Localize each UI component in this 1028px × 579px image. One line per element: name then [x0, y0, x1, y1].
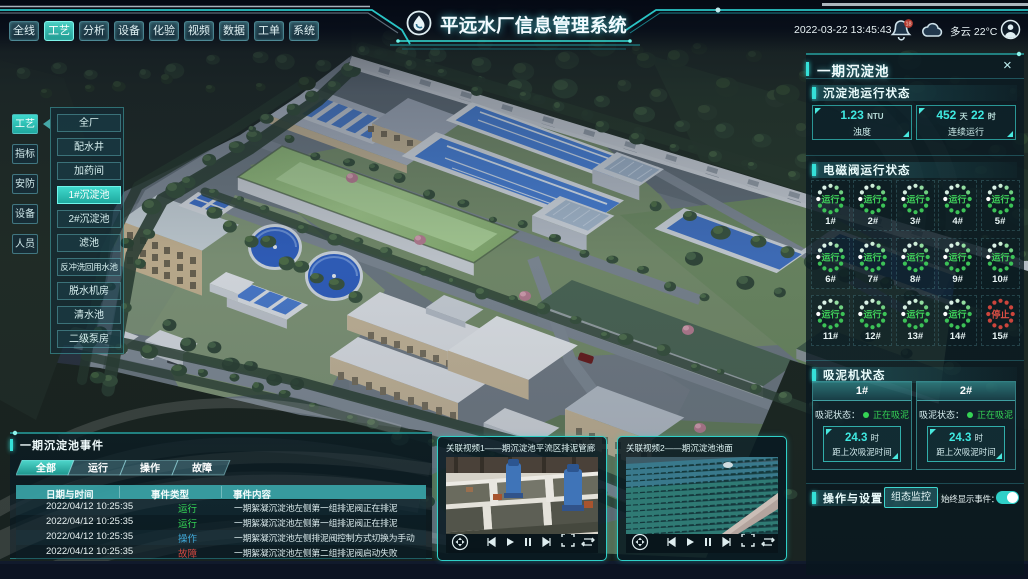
- svg-text:全部: 全部: [35, 462, 56, 475]
- svg-text:运行: 运行: [949, 194, 967, 205]
- svg-text:运行: 运行: [991, 251, 1009, 262]
- svg-text:运行: 运行: [864, 309, 882, 320]
- svg-text:运行: 运行: [864, 194, 882, 205]
- svg-text:运行: 运行: [991, 194, 1009, 205]
- svg-text:操作: 操作: [140, 462, 160, 475]
- svg-text:18: 18: [905, 22, 911, 28]
- svg-text:运行: 运行: [821, 309, 839, 320]
- svg-text:停止: 停止: [991, 309, 1009, 320]
- svg-text:运行: 运行: [906, 194, 924, 205]
- svg-text:运行: 运行: [864, 251, 882, 262]
- svg-text:运行: 运行: [821, 251, 839, 262]
- svg-text:运行: 运行: [949, 309, 967, 320]
- svg-text:运行: 运行: [906, 309, 924, 320]
- svg-text:运行: 运行: [821, 194, 839, 205]
- svg-text:运行: 运行: [88, 462, 108, 475]
- svg-text:运行: 运行: [906, 251, 924, 262]
- svg-text:故障: 故障: [192, 462, 212, 475]
- svg-text:运行: 运行: [949, 251, 967, 262]
